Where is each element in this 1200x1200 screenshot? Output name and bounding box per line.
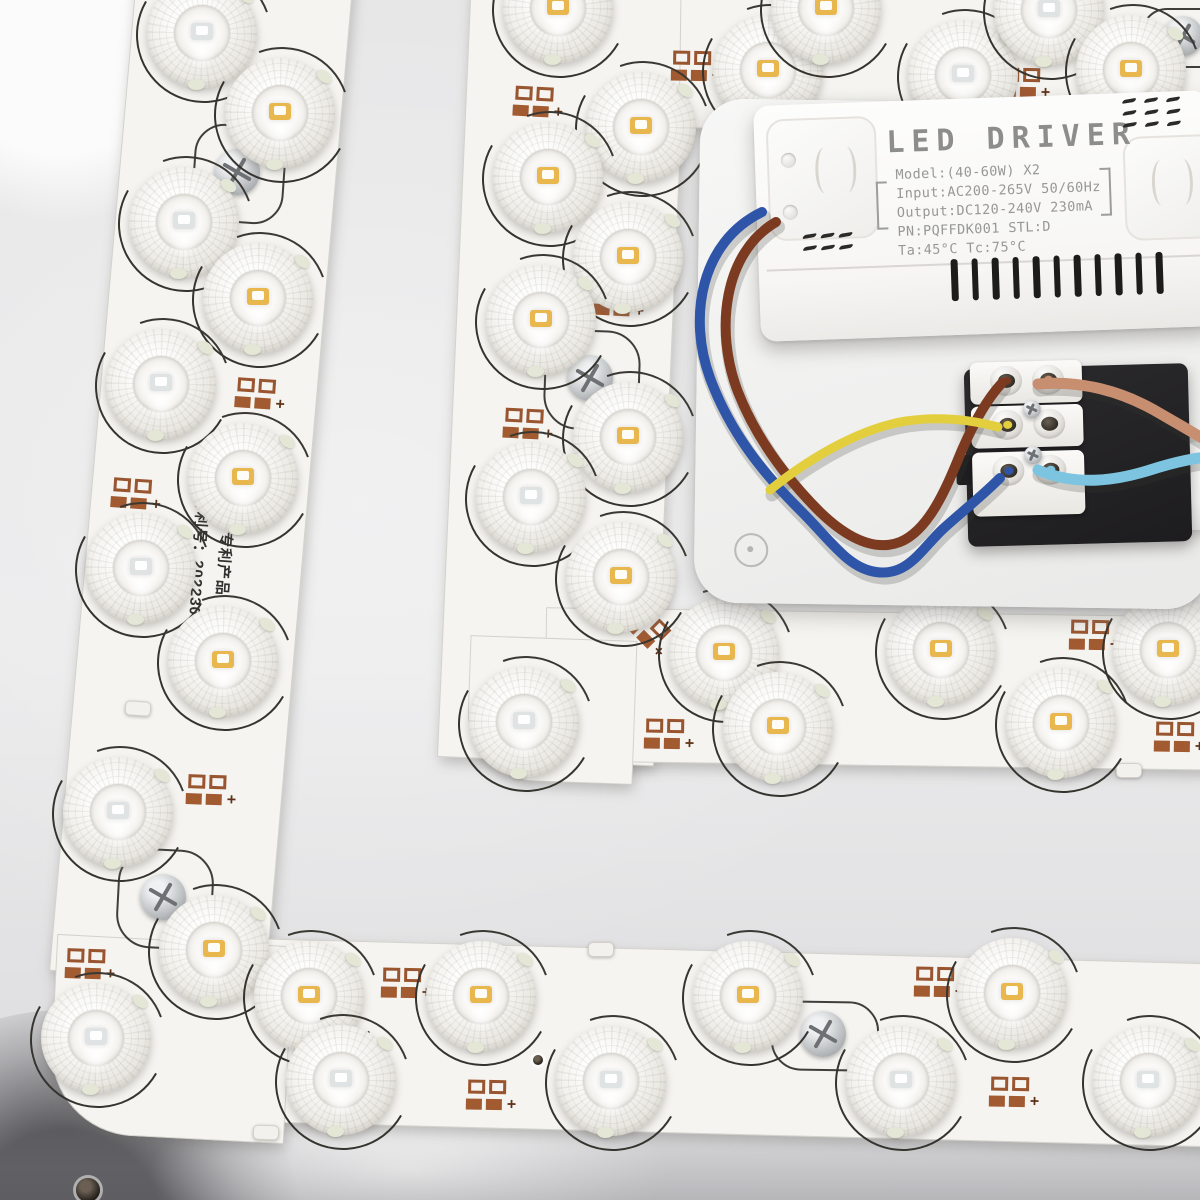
led-chip-core: [303, 989, 315, 998]
wire-end: [1003, 421, 1012, 429]
driver-cap-slot-icon: [815, 147, 836, 194]
led-tab: [764, 773, 781, 784]
pad-outline: [1071, 620, 1088, 634]
pad-outline: [536, 87, 554, 102]
led-chip-core: [217, 654, 229, 663]
led-lens: [758, 0, 894, 76]
wire-end: [1002, 377, 1011, 385]
led-tab: [614, 303, 631, 314]
led-chip-core: [957, 68, 969, 77]
driver-temp-line: Ta:45°C Tc:75°C: [898, 239, 1026, 259]
driver-end-cap-left: [766, 116, 880, 242]
led-chip-core: [742, 989, 754, 998]
lamp-interior-photo: 专利号：202230506086.0 专利产品 LED DRIVER Model…: [0, 0, 1200, 1200]
led-chip-core: [252, 291, 264, 300]
led-tab: [1154, 696, 1171, 707]
polarity-pads-mark: +: [985, 1076, 1050, 1111]
led-lens: [273, 1012, 409, 1148]
polarity-pads-mark: +: [181, 774, 246, 810]
led-chip-core: [335, 1073, 347, 1082]
led-tab: [927, 696, 944, 707]
led-tab: [170, 268, 187, 279]
led-tab: [527, 366, 544, 377]
pad-outline: [489, 1080, 506, 1094]
terminal-hole: [998, 374, 1015, 388]
driver-vent-slash-icon: [1144, 109, 1160, 115]
led-chip-core: [274, 106, 286, 115]
led-tab: [812, 54, 829, 65]
pad-outline: [1177, 722, 1194, 736]
terminal-cylinder: [991, 409, 1024, 440]
driver-cap-slot-icon: [1173, 159, 1194, 206]
pad-plus-mark: +: [507, 1097, 517, 1113]
led-lens: [155, 593, 291, 729]
led-tab: [147, 430, 164, 441]
pad-outline: [515, 86, 533, 101]
led-tab: [200, 996, 217, 1007]
led-chip-core: [772, 720, 784, 729]
wire-end: [1004, 467, 1013, 475]
led-chip-core: [820, 1, 832, 10]
led-lens: [680, 928, 816, 1064]
led-lens: [710, 659, 846, 795]
terminal-hole: [1042, 462, 1059, 476]
driver-vent-slot-icon: [1094, 254, 1102, 296]
driver-wiring-bracket-left: [876, 181, 889, 229]
led-tab: [627, 173, 644, 184]
driver-vent-slash-icon: [802, 245, 818, 251]
pad-outline: [209, 775, 226, 790]
led-chip-core: [155, 377, 167, 386]
terminal-cylinder: [1032, 364, 1065, 395]
led-chip-core: [935, 643, 947, 652]
led-tab: [534, 223, 551, 234]
terminal-cylinder: [990, 365, 1023, 396]
driver-vent-slot-icon: [1073, 255, 1081, 297]
driver-wiring-bracket-right: [1099, 168, 1112, 216]
led-tab: [597, 1127, 614, 1138]
led-tab: [127, 614, 144, 625]
pad-filled: [664, 738, 680, 749]
led-tab: [82, 1084, 99, 1095]
led-chip-core: [1006, 986, 1018, 995]
terminal-hole: [999, 418, 1016, 432]
led-chip-core: [525, 490, 537, 499]
led-tab: [467, 1042, 484, 1053]
led-tab: [544, 54, 561, 65]
led-chip-core: [208, 943, 220, 952]
led-lens: [413, 928, 549, 1064]
driver-vent-slot-icon: [1114, 253, 1122, 295]
driver-vent-slash-icon: [1166, 120, 1182, 126]
led-chip-core: [895, 1074, 907, 1083]
pad-filled: [206, 794, 222, 806]
plate-hole: [76, 1178, 100, 1200]
pad-filled: [254, 397, 271, 409]
driver-vent-slot-icon: [1135, 253, 1143, 295]
terminal-cylinder: [992, 455, 1025, 486]
pad-filled: [1154, 741, 1170, 752]
led-chip-core: [1142, 1074, 1154, 1083]
driver-pn-line: PN:PQFFDK001 STL:D: [897, 219, 1051, 240]
led-chip-core: [718, 646, 730, 655]
led-tab: [1047, 769, 1064, 780]
led-chip-core: [196, 26, 208, 35]
pad-outline: [113, 477, 131, 492]
polarity-pads-mark: +: [640, 718, 705, 753]
driver-cap-hole-icon: [782, 205, 798, 221]
led-lens: [944, 925, 1080, 1061]
pad-outline: [505, 408, 523, 423]
driver-vent-slot-icon: [971, 258, 979, 300]
pad-plus-mark: +: [1195, 739, 1200, 755]
terminal-hole: [1041, 417, 1058, 431]
led-chip-core: [90, 1031, 102, 1040]
polarity-pads-mark: +: [462, 1079, 527, 1114]
pad-outline: [134, 479, 152, 494]
driver-vent-slot-icon: [1155, 252, 1163, 294]
pad-filled: [381, 987, 397, 998]
led-tab: [209, 707, 226, 718]
led-chip-core: [475, 989, 487, 998]
terminal-module: [970, 360, 1083, 405]
pad-filled: [989, 1096, 1005, 1107]
driver-vent-slash-icon: [838, 244, 854, 250]
led-chip-core: [1125, 63, 1137, 72]
driver-cap-slot-icon: [1151, 159, 1172, 206]
pad-filled: [1009, 1096, 1025, 1107]
led-chip-core: [542, 170, 554, 179]
led-chip-core: [552, 1, 564, 10]
led-tab: [188, 79, 205, 90]
driver-vent-slash-icon: [1165, 96, 1181, 102]
pcb-clip: [125, 700, 152, 717]
pad-outline: [67, 948, 84, 963]
driver-vent-slot-icon: [991, 258, 999, 300]
driver-vent-slot-icon: [1032, 256, 1040, 298]
pad-plus-mark: +: [685, 736, 695, 752]
led-tab: [104, 858, 121, 869]
driver-vent-slash-icon: [1166, 108, 1182, 114]
led-tab: [244, 344, 261, 355]
led-tab: [614, 483, 631, 494]
pcb-clip: [588, 942, 614, 957]
led-tab: [266, 159, 283, 170]
led-lens: [543, 1013, 679, 1149]
led-tab: [229, 524, 246, 535]
pad-outline: [237, 377, 255, 392]
led-chip-core: [237, 471, 249, 480]
led-tab: [887, 1127, 904, 1138]
pad-filled: [234, 396, 251, 408]
driver-title: LED DRIVER: [886, 117, 1138, 161]
led-tab: [327, 1126, 344, 1137]
pad-outline: [88, 949, 105, 964]
driver-vent-slot-icon: [950, 259, 958, 301]
driver-model-line: Model:(40-60W) X2: [895, 162, 1040, 183]
led-lens: [473, 252, 609, 388]
led-tab: [510, 768, 527, 779]
led-chip-core: [112, 805, 124, 814]
pad-filled: [466, 1099, 482, 1110]
led-tab: [734, 1042, 751, 1053]
led-chip-core: [622, 430, 634, 439]
mains-terminal-block: [964, 363, 1193, 547]
pad-outline: [1156, 722, 1173, 736]
pad-outline: [667, 719, 684, 733]
led-driver-box: LED DRIVER Model:(40-60W) X2 Input:AC200…: [753, 90, 1200, 342]
led-chip-core: [178, 215, 190, 224]
driver-cap-slot-icon: [837, 146, 858, 193]
led-chip-core: [622, 250, 634, 259]
pad-filled: [186, 793, 202, 805]
terminal-hole: [1000, 464, 1017, 478]
led-chip-core: [1055, 716, 1067, 725]
pad-filled: [1069, 639, 1085, 650]
driver-vent-slot-icon: [1012, 257, 1020, 299]
pad-filled: [1174, 741, 1190, 752]
led-chip-core: [535, 313, 547, 322]
terminal-block-tab: [956, 455, 973, 485]
driver-vent-slash-icon: [1144, 121, 1160, 127]
led-lens: [28, 970, 164, 1106]
pad-outline: [1012, 1077, 1029, 1091]
led-lens: [1080, 1013, 1200, 1149]
pad-outline: [188, 774, 205, 789]
led-tab: [607, 623, 624, 634]
led-chip-core: [135, 561, 147, 570]
driver-vent-slash-icon: [1121, 98, 1137, 104]
pad-outline: [258, 379, 276, 394]
platform-emboss-mark: [734, 533, 768, 567]
wire-end: [1044, 376, 1053, 384]
polarity-pads-mark: +: [1150, 721, 1200, 756]
led-tab: [998, 1039, 1015, 1050]
driver-cap-hole-icon: [781, 153, 797, 169]
pad-outline: [383, 968, 400, 982]
driver-vent-slash-icon: [820, 244, 836, 250]
led-chip-core: [615, 570, 627, 579]
led-chip-core: [635, 120, 647, 129]
pad-outline: [991, 1077, 1008, 1091]
led-tab: [1035, 56, 1052, 67]
pad-filled: [486, 1099, 502, 1110]
terminal-hole: [1040, 373, 1057, 387]
pad-outline: [526, 409, 544, 424]
led-chip-core: [1043, 3, 1055, 12]
driver-vent-slash-icon: [1122, 110, 1138, 116]
pad-plus-mark: +: [1030, 1094, 1040, 1110]
led-lens: [50, 744, 186, 880]
pad-outline: [468, 1080, 485, 1094]
driver-output-line: Output:DC120-240V 230mA: [897, 198, 1094, 221]
pad-plus-mark: +: [226, 792, 236, 808]
led-lens: [456, 654, 592, 790]
pad-filled: [644, 738, 660, 749]
led-chip-core: [1162, 643, 1174, 652]
wire-end: [1046, 466, 1055, 474]
pad-outline: [916, 967, 933, 981]
led-chip-core: [605, 1074, 617, 1083]
driver-vent-slash-icon: [1143, 97, 1159, 103]
led-tab: [517, 543, 534, 554]
driver-vent-slot-icon: [1053, 255, 1061, 297]
led-chip-core: [518, 715, 530, 724]
pad-filled: [914, 986, 930, 997]
led-tab: [1134, 1127, 1151, 1138]
